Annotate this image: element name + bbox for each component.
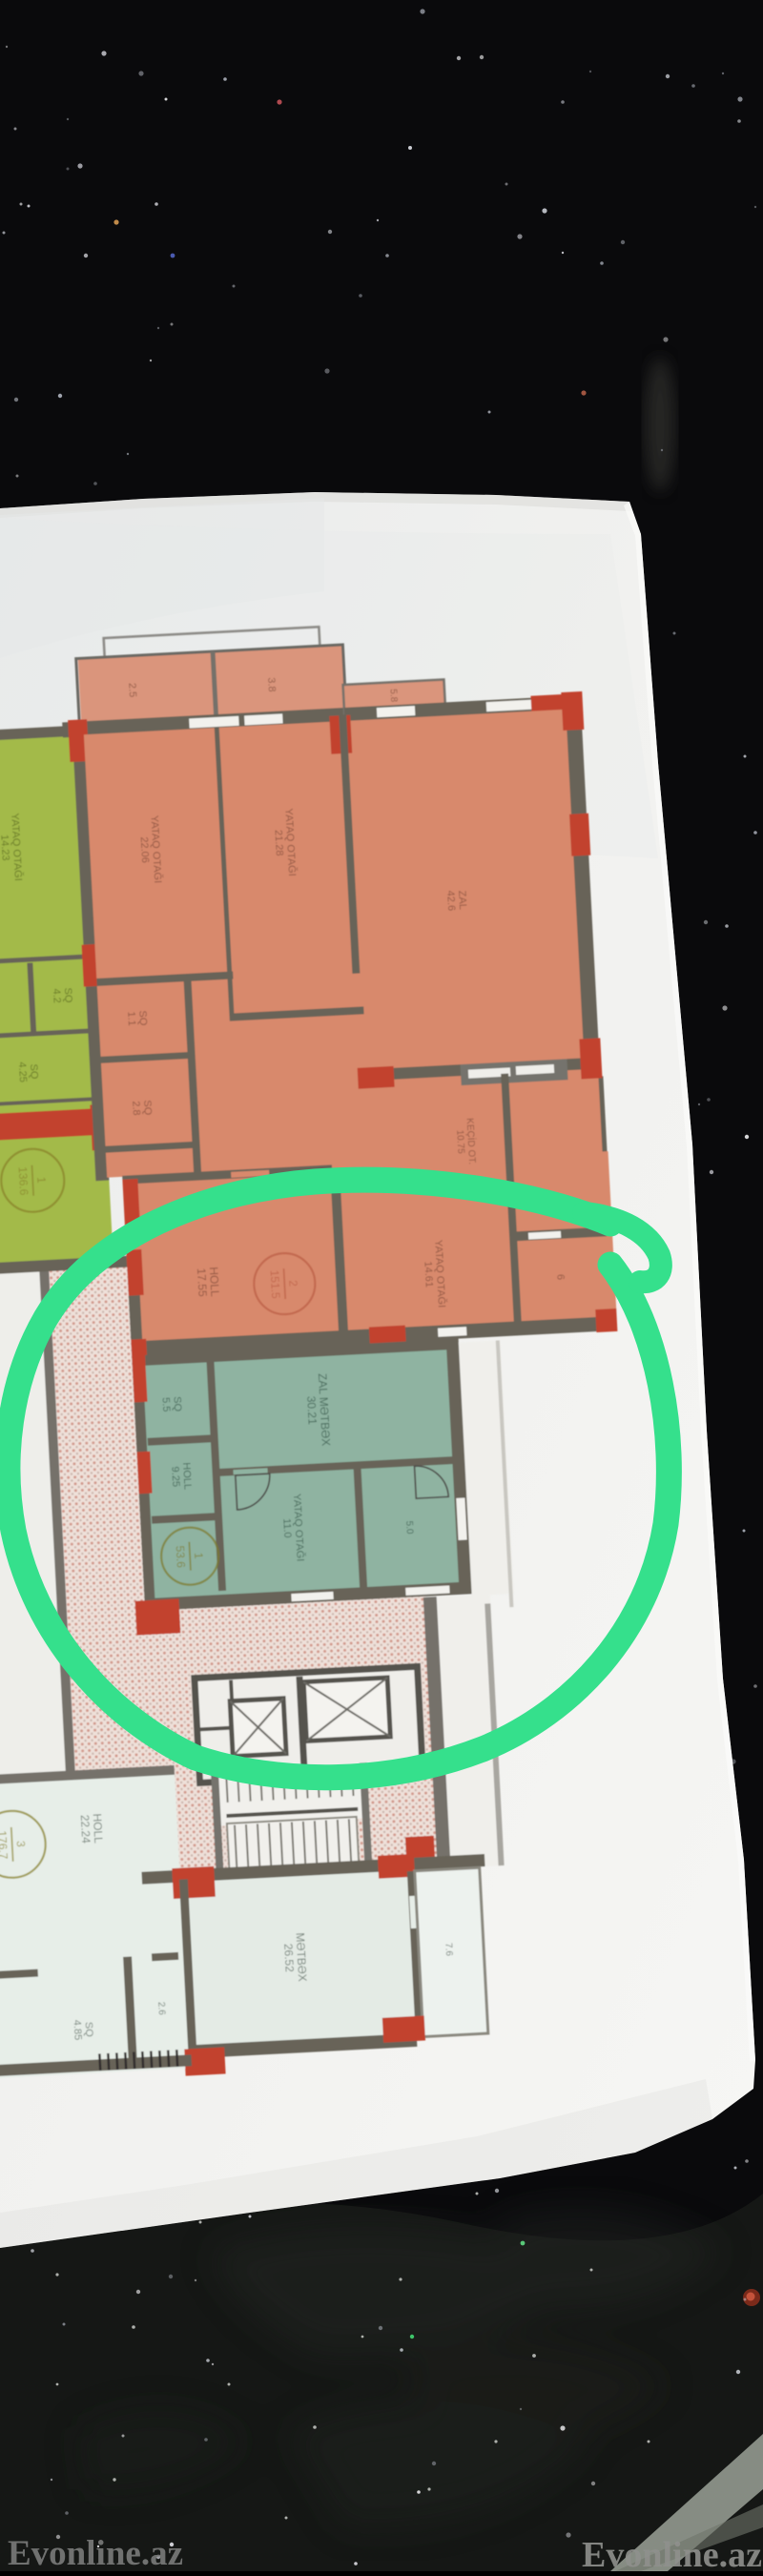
svg-text:1.1: 1.1: [125, 1011, 137, 1026]
svg-text:6: 6: [554, 1274, 566, 1281]
svg-text:22.24: 22.24: [77, 1814, 93, 1844]
svg-text:1: 1: [192, 1552, 205, 1559]
svg-text:ZAL: ZAL: [456, 890, 468, 910]
svg-text:3: 3: [14, 1841, 28, 1848]
svg-text:176.7: 176.7: [0, 1830, 10, 1860]
svg-text:11.0: 11.0: [280, 1518, 293, 1538]
svg-text:SQ: SQ: [172, 1396, 184, 1412]
svg-text:7.6: 7.6: [443, 1943, 454, 1957]
svg-text:9.25: 9.25: [169, 1466, 181, 1487]
svg-text:4.25: 4.25: [16, 1061, 29, 1082]
svg-text:136.6: 136.6: [16, 1166, 31, 1196]
svg-text:SQ: SQ: [141, 1100, 154, 1116]
svg-text:SQ: SQ: [83, 2022, 95, 2038]
svg-text:4.85: 4.85: [72, 2020, 84, 2041]
svg-text:14.23: 14.23: [0, 835, 11, 861]
svg-text:Evonline.az: Evonline.az: [8, 2534, 183, 2571]
svg-text:53.6: 53.6: [174, 1545, 188, 1568]
svg-text:2: 2: [286, 1280, 299, 1288]
svg-text:5.0: 5.0: [403, 1520, 415, 1535]
svg-text:5.5: 5.5: [160, 1397, 173, 1412]
svg-text:SQ: SQ: [28, 1063, 40, 1080]
svg-text:SQ: SQ: [136, 1010, 149, 1026]
svg-text:2.8: 2.8: [130, 1101, 142, 1116]
svg-text:SQ: SQ: [62, 987, 74, 1003]
svg-text:14.61: 14.61: [423, 1261, 435, 1288]
svg-text:1: 1: [34, 1177, 48, 1185]
svg-text:17.55: 17.55: [195, 1267, 210, 1297]
svg-text:151.5: 151.5: [268, 1269, 283, 1299]
svg-text:22.06: 22.06: [138, 836, 151, 863]
svg-text:5.8: 5.8: [387, 689, 399, 703]
svg-text:42.6: 42.6: [444, 890, 457, 911]
svg-text:Evonline.az: Evonline.az: [582, 2535, 762, 2571]
svg-text:26.52: 26.52: [281, 1943, 297, 1972]
svg-text:4.2: 4.2: [51, 988, 63, 1003]
svg-text:10.75: 10.75: [454, 1129, 465, 1154]
svg-text:3.8: 3.8: [265, 677, 278, 692]
svg-text:30.21: 30.21: [304, 1395, 320, 1425]
svg-text:2.6: 2.6: [155, 2002, 167, 2016]
svg-text:2.5: 2.5: [126, 683, 138, 698]
svg-text:21.28: 21.28: [273, 830, 285, 856]
